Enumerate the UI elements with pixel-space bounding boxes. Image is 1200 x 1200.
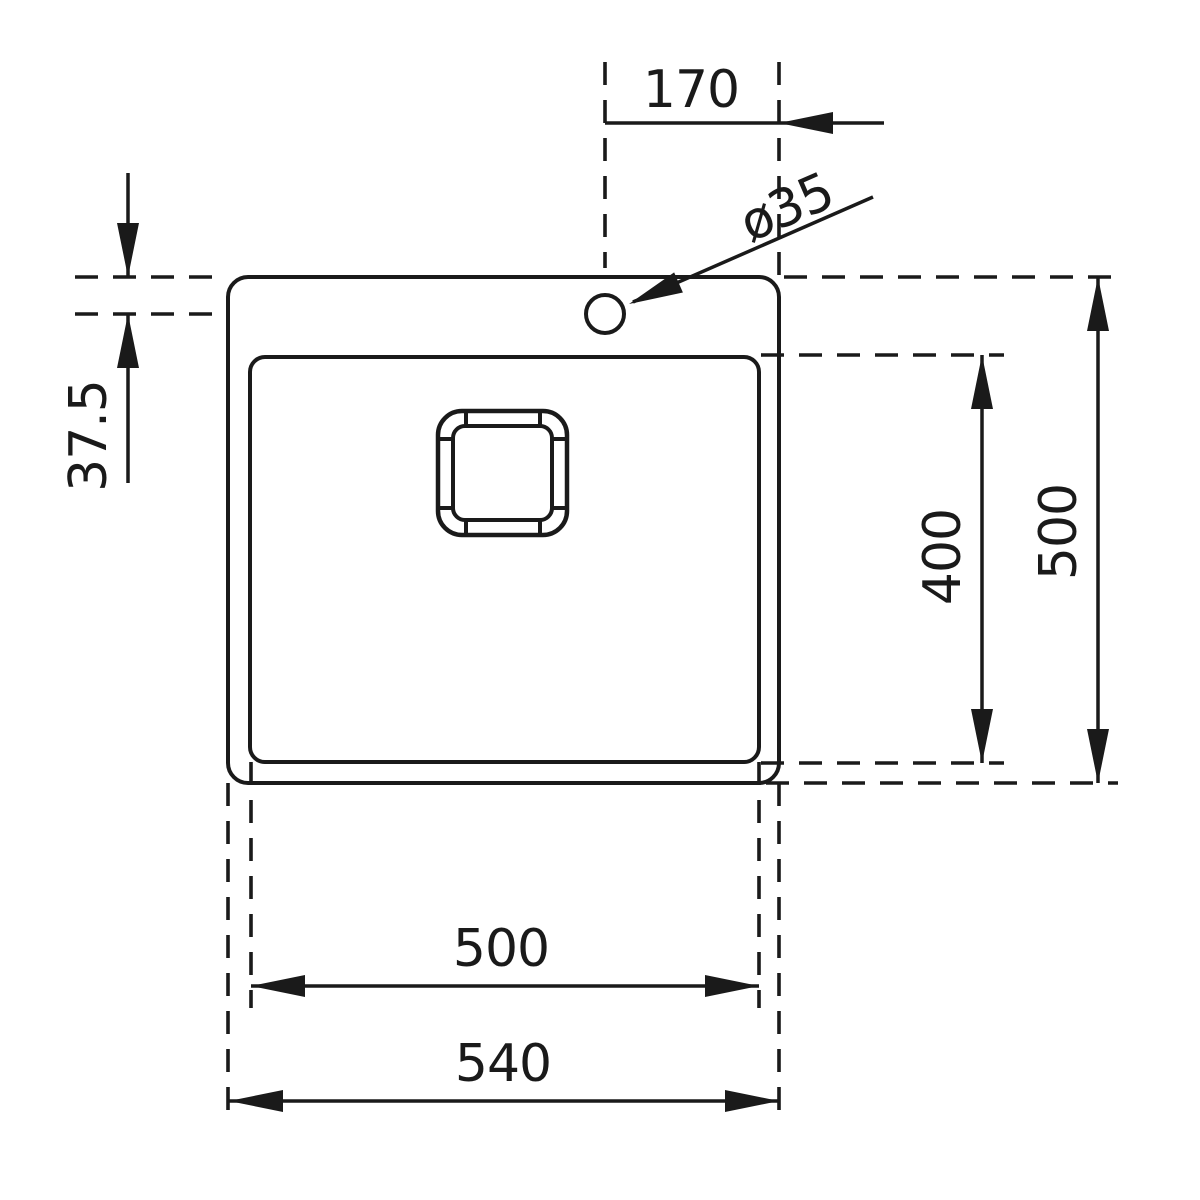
drawing-canvas: 170 ø35 37.5 400 500 500 5 xyxy=(0,0,1200,1200)
dim-label-tap-offset-top: 37.5 xyxy=(59,380,119,492)
dim-label-bowl-length: 400 xyxy=(913,509,973,605)
dim-label-bowl-width: 500 xyxy=(453,919,549,979)
sink-dimension-drawing: 170 ø35 37.5 400 500 500 5 xyxy=(0,0,1200,1200)
dim-label-overall-width: 540 xyxy=(455,1034,551,1094)
dim-label-overall-length: 500 xyxy=(1029,484,1089,580)
dim-label-tap-offset-right: 170 xyxy=(643,60,739,120)
drawing-background xyxy=(0,0,1200,1200)
